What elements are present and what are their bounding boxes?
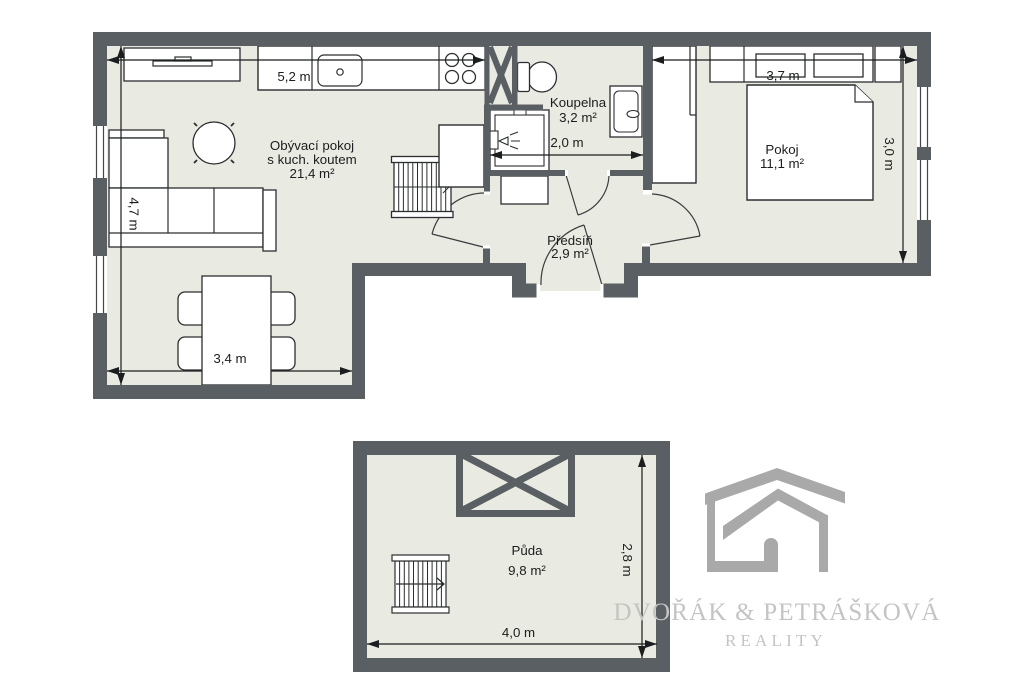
svg-text:3,0 m: 3,0 m — [882, 137, 897, 170]
svg-text:3,4 m: 3,4 m — [213, 351, 246, 366]
svg-text:s kuch. koutem: s kuch. koutem — [267, 152, 356, 167]
svg-text:4,7 m: 4,7 m — [127, 197, 142, 230]
svg-text:5,2 m: 5,2 m — [277, 69, 310, 84]
svg-text:11,1 m²: 11,1 m² — [760, 156, 805, 171]
svg-text:DVOŘÁK & PETRÁŠKOVÁ: DVOŘÁK & PETRÁŠKOVÁ — [614, 597, 941, 626]
svg-text:Pokoj: Pokoj — [765, 142, 798, 157]
svg-text:4,0 m: 4,0 m — [502, 625, 535, 640]
svg-text:2,0 m: 2,0 m — [550, 135, 583, 150]
svg-text:2,9 m²: 2,9 m² — [551, 246, 589, 261]
svg-text:21,4 m²: 21,4 m² — [289, 166, 335, 181]
svg-text:Koupelna: Koupelna — [550, 95, 607, 110]
svg-text:Půda: Půda — [511, 543, 543, 558]
svg-text:3,2 m²: 3,2 m² — [559, 110, 597, 125]
svg-text:3,7 m: 3,7 m — [766, 68, 799, 83]
svg-text:REALITY: REALITY — [725, 631, 827, 650]
svg-text:Obývací pokoj: Obývací pokoj — [270, 138, 354, 153]
svg-text:2,8 m: 2,8 m — [620, 543, 635, 576]
svg-text:9,8 m²: 9,8 m² — [508, 563, 546, 578]
